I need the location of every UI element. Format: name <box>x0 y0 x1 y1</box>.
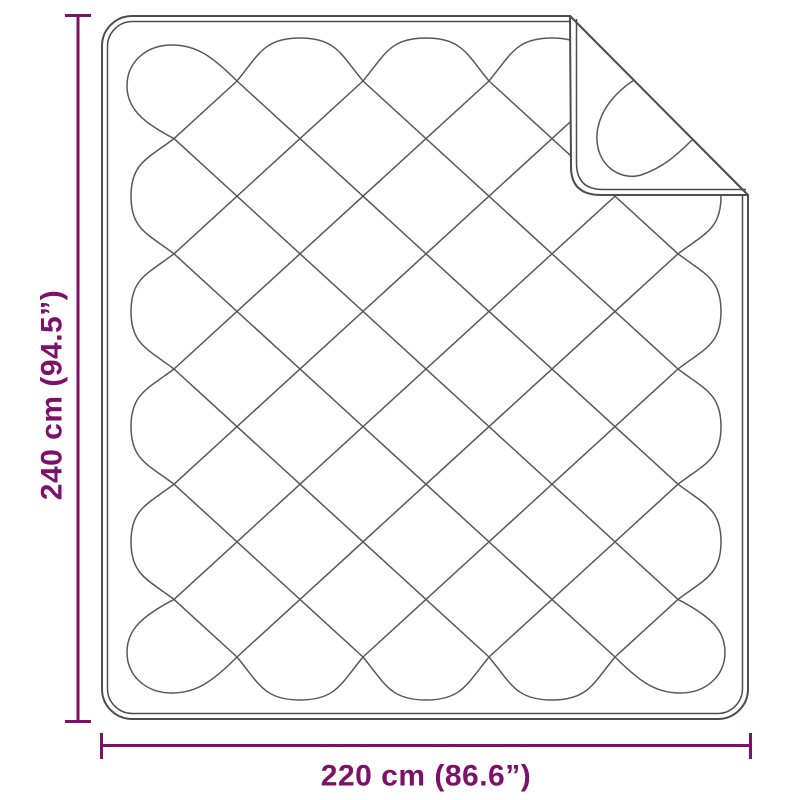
product-dimension-diagram: 240 cm (94.5”) 220 cm (86.6”) <box>0 0 800 800</box>
height-dimension: 240 cm (94.5”) <box>36 14 92 723</box>
height-dimension-label: 240 cm (94.5”) <box>36 290 69 500</box>
width-dimension: 220 cm (86.6”) <box>100 733 752 793</box>
fold-flap-shape <box>570 16 748 195</box>
blanket-illustration: 240 cm (94.5”) 220 cm (86.6”) <box>0 0 800 800</box>
width-dimension-line <box>100 733 752 759</box>
height-dimension-line <box>65 14 91 723</box>
folded-corner-flap <box>570 16 748 195</box>
width-dimension-label: 220 cm (86.6”) <box>321 760 531 793</box>
